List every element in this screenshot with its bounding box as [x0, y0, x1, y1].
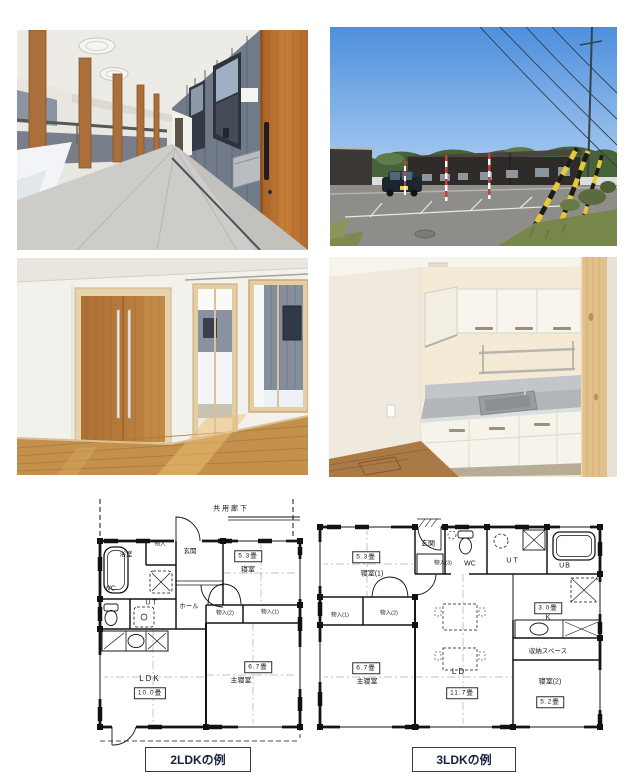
size-label-ldk: 10.0畳	[134, 687, 166, 699]
building-exterior-photo	[330, 27, 617, 246]
size-label-bedroom1: 5.3畳	[352, 551, 380, 563]
caption-2ldk-label: 2LDKの例	[170, 751, 225, 768]
covered-walkway-illustration	[17, 30, 308, 250]
caption-2ldk: 2LDKの例	[145, 747, 251, 772]
room-label-corridor: 共用廊下	[213, 506, 249, 513]
room-label-master: 主寝室	[357, 679, 378, 686]
room-label-bath: 浴室	[120, 552, 133, 559]
caption-3ldk-label: 3LDKの例	[436, 751, 491, 768]
kitchen-photo	[329, 257, 617, 477]
room-label-ut: UT	[145, 600, 158, 607]
kitchen-illustration	[329, 257, 617, 477]
document-page: { "photos": [ {"id": "covered-walkway-ph…	[0, 0, 632, 777]
closet-handle	[117, 310, 120, 418]
room-label-master: 主寝室	[231, 678, 252, 685]
covered-walkway-photo	[17, 30, 308, 250]
size-label-bedroom: 5.3畳	[234, 550, 262, 562]
closet-handle	[128, 310, 131, 418]
right-window	[249, 280, 308, 412]
room-label-closet1: 物入(1)	[261, 610, 279, 616]
room-label-ub: UB	[559, 563, 571, 570]
size-label-master: 6.7畳	[244, 661, 272, 673]
light-switch	[387, 405, 395, 417]
room-label-bedroom2: 寝室(2)	[539, 679, 562, 686]
room-label-closet2: 物入(2)	[380, 611, 398, 617]
floorplan-3ldk-drawing	[315, 512, 607, 744]
room-label-closet3: 物入(3)	[434, 561, 452, 567]
room-label-closet1: 物入(1)	[331, 613, 349, 619]
room-label-k: K	[546, 615, 551, 622]
floorplan-2ldk-drawing	[88, 497, 304, 747]
room-label-hall: ホール	[179, 604, 199, 611]
floorplan-2ldk: 共用廊下 浴室 物入 玄関 5.3畳 寝室 WC UT ホール 物入(2) 物入…	[88, 497, 304, 747]
room-label-storage: 収納スペース	[529, 649, 567, 656]
size-label-ld: 11.7畳	[446, 687, 478, 699]
door-handle	[264, 122, 269, 180]
room-label-ut: UT	[506, 558, 519, 565]
room-label-entrance: 玄関	[184, 549, 197, 556]
room-label-wc: WC	[104, 586, 116, 593]
wooden-post	[581, 257, 607, 477]
interior-room-illustration	[17, 258, 308, 475]
size-label-master: 6.7畳	[352, 662, 380, 674]
room-label-entrance: 玄関	[421, 541, 435, 548]
building-exterior-illustration	[330, 27, 617, 246]
room-label-bedroom1: 寝室(1)	[361, 571, 384, 578]
interior-room-photo	[17, 258, 308, 475]
caption-3ldk: 3LDKの例	[412, 747, 516, 772]
floorplan-3ldk: 5.3畳 寝室(1) 玄関 物入(3) WC UT UB 3.0畳 K 物入(1…	[315, 512, 607, 744]
closet-doors	[75, 288, 171, 446]
room-label-closet2: 物入(2)	[216, 611, 234, 617]
upper-cabinets	[457, 289, 581, 333]
size-label-k: 3.0畳	[534, 602, 562, 614]
room-label-ldk: LDK	[139, 675, 161, 683]
room-label-ld: LD	[452, 668, 466, 676]
room-label-wc: WC	[464, 561, 476, 568]
size-label-bedroom2: 5.2畳	[536, 696, 564, 708]
room-label-closet: 物入	[154, 542, 165, 548]
room-label-bedroom: 寝室	[241, 567, 255, 574]
